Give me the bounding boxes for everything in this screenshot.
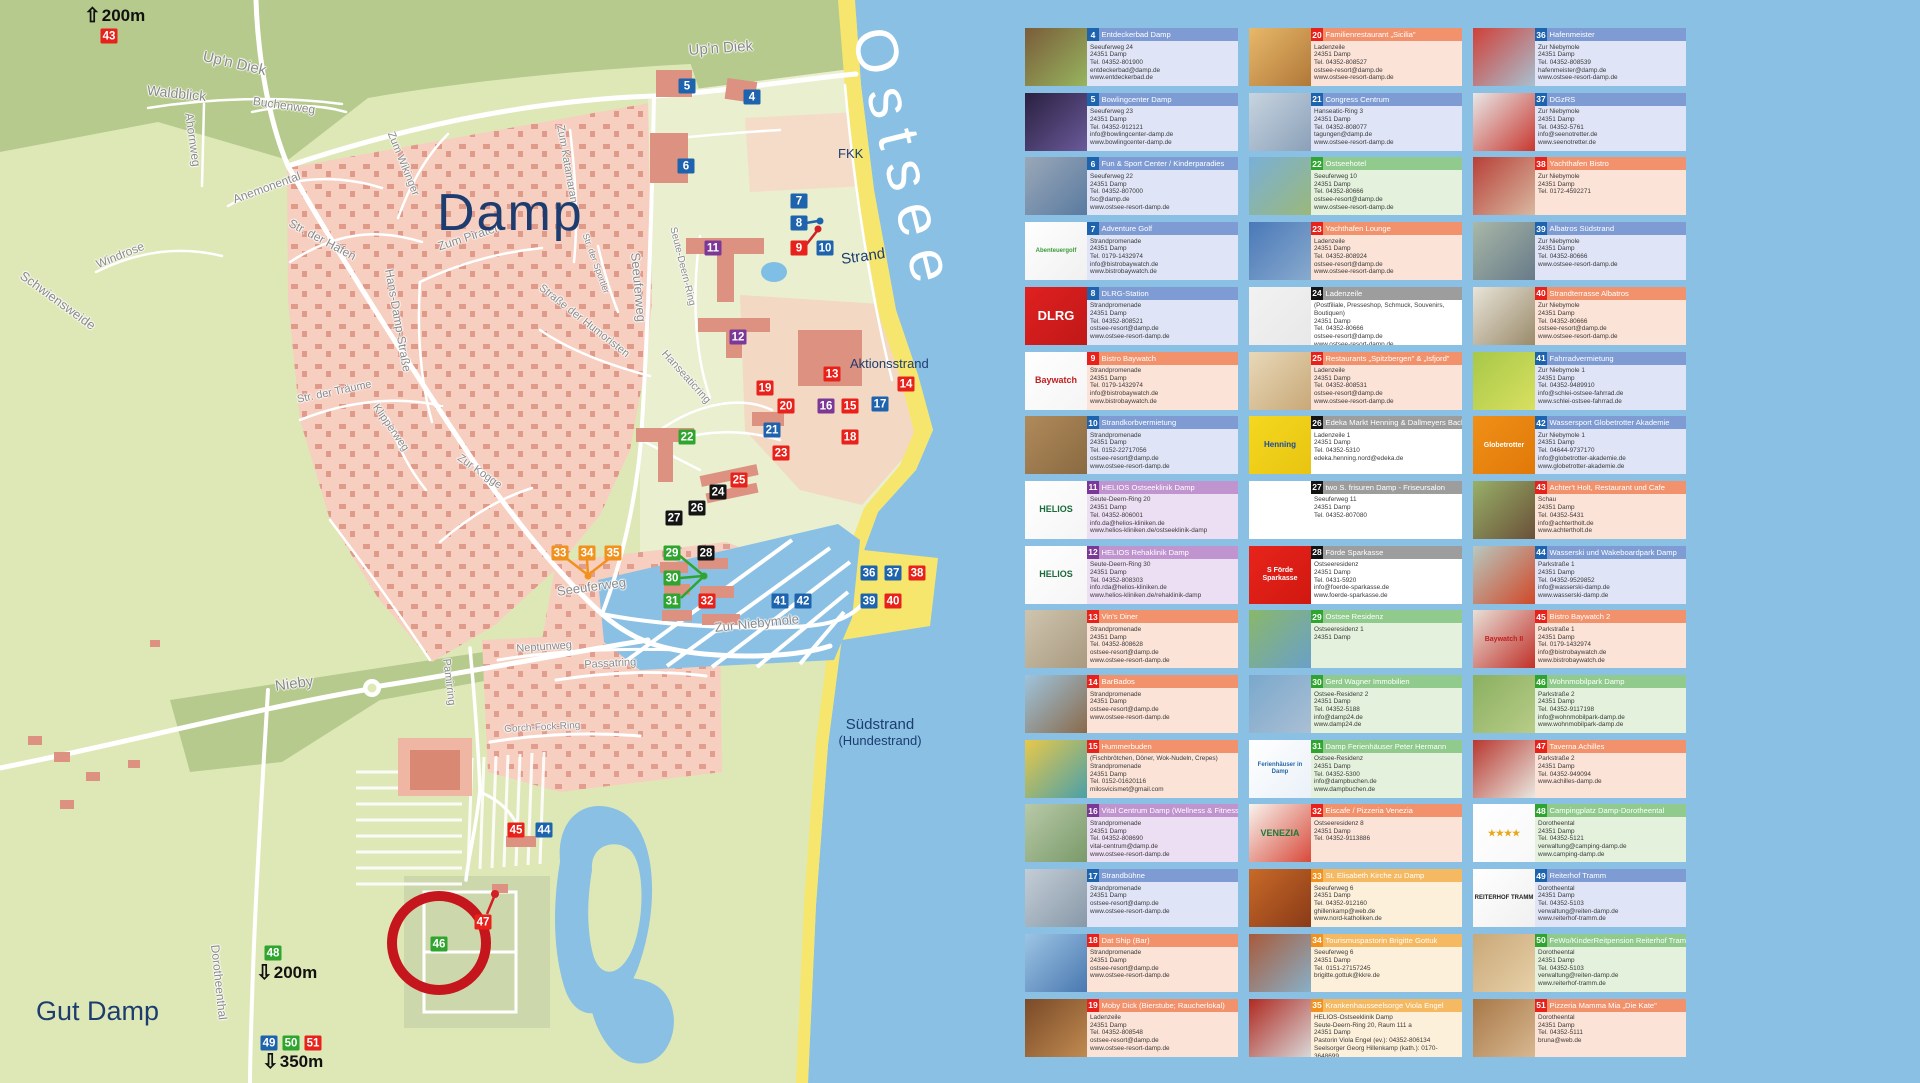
entry-name: Reiterhof Tramm [1550, 871, 1607, 880]
scale-indicator-camping: ⇩ 200m [256, 963, 317, 983]
entry-details: Hanseatic-Ring 324351 DampTel. 04352-808… [1311, 106, 1462, 151]
entry-number: 34 [1311, 934, 1323, 947]
entry-name: Albatros Südstrand [1550, 224, 1615, 233]
directory-entry-15: 15Hummerbuden(Fischbrötchen, Döner, Wok-… [1025, 740, 1238, 798]
directory-entry-33: 33St. Elisabeth Kirche zu DampSeeuferweg… [1249, 869, 1462, 927]
entry-details: Seeuferweg 2424351 DampTel. 04352-801900… [1087, 41, 1238, 86]
entry-number: 19 [1087, 999, 1099, 1012]
entry-photo [1473, 675, 1535, 733]
entry-header: 20Familienrestaurant „Sicilia" [1311, 28, 1462, 41]
entry-header: 26Edeka Markt Henning & Dallmeyers Backh… [1311, 416, 1462, 429]
entry-header: 51Pizzeria Mamma Mia „Die Kate" [1535, 999, 1686, 1012]
entry-header: 13Vin's Diner [1087, 610, 1238, 623]
map-marker-41: 41 [772, 594, 789, 609]
entry-details: Parkstraße 224351 DampTel. 04352-949094w… [1535, 753, 1686, 798]
entry-header: 11HELIOS Ostseeklinik Damp [1087, 481, 1238, 494]
entry-details: Parkstraße 224351 DampTel. 04352-9117198… [1535, 688, 1686, 733]
map-marker-48: 48 [265, 946, 282, 961]
directory-entry-49: REITERHOF TRAMM49Reiterhof TrammDorothee… [1473, 869, 1686, 927]
entry-header: 23Yachthafen Lounge [1311, 222, 1462, 235]
map-marker-23: 23 [773, 446, 790, 461]
map-marker-11: 11 [705, 241, 722, 256]
entry-name: Krankenhausseelsorge Viola Engel [1326, 1001, 1444, 1010]
map-marker-21: 21 [764, 423, 781, 438]
entry-number: 46 [1535, 675, 1547, 688]
map-marker-39: 39 [861, 594, 878, 609]
entry-number: 15 [1087, 740, 1099, 753]
entry-details: Ostseeresidenz24351 DampTel. 0431-5920in… [1311, 559, 1462, 604]
entry-name: Ladenzeile [1326, 289, 1363, 298]
entry-details: Seeuferweg 2224351 DampTel. 04352-807000… [1087, 170, 1238, 215]
directory-entry-18: 18Dat Ship (Bar)Strandpromenade24351 Dam… [1025, 934, 1238, 992]
entry-photo [1473, 352, 1535, 410]
directory-entry-22: 22OstseehotelSeeuferweg 1024351 DampTel.… [1249, 157, 1462, 215]
entry-photo: REITERHOF TRAMM [1473, 869, 1535, 927]
map-marker-46: 46 [431, 937, 448, 952]
directory-entry-43: 43Achter't Holt, Restaurant und CafeScha… [1473, 481, 1686, 539]
entry-details: Zur Niebymole24351 DampTel. 04352-80666o… [1535, 300, 1686, 345]
entry-details: Ostseeresidenz 124351 Damp [1311, 623, 1462, 668]
entry-header: 32Eiscafe / Pizzeria Venezia [1311, 804, 1462, 817]
entry-header: 12HELIOS Rehaklinik Damp [1087, 546, 1238, 559]
entry-number: 48 [1535, 804, 1547, 817]
entry-header: 38Yachthafen Bistro [1535, 157, 1686, 170]
map-marker-5: 5 [679, 79, 696, 94]
entry-details: Strandpromenade24351 Dampostsee-resort@d… [1087, 882, 1238, 927]
entry-photo [1473, 157, 1535, 215]
entry-name: Restaurants „Spitzbergen" & „Isfjord" [1326, 354, 1450, 363]
entry-header: 35Krankenhausseelsorge Viola Engel [1311, 999, 1462, 1012]
map-marker-17: 17 [872, 397, 889, 412]
entry-details: Zur Niebymole24351 DampTel. 0172-4592271 [1535, 170, 1686, 215]
directory-entry-42: Globetrotter42Wassersport Globetrotter A… [1473, 416, 1686, 474]
entry-header: 37DGzRS [1535, 93, 1686, 106]
entry-photo [1249, 675, 1311, 733]
entry-photo [1249, 999, 1311, 1057]
entry-number: 49 [1535, 869, 1547, 882]
entry-details: Seute-Deern-Ring 2024351 DampTel. 04352-… [1087, 494, 1238, 539]
entry-photo [1249, 352, 1311, 410]
entry-name: Tourismuspastorin Brigitte Gottuk [1326, 936, 1438, 945]
entry-number: 40 [1535, 287, 1547, 300]
entry-photo [1249, 93, 1311, 151]
directory-entry-44: 44Wasserski und Wakeboardpark DampParkst… [1473, 546, 1686, 604]
entry-number: 22 [1311, 157, 1323, 170]
entry-number: 42 [1535, 416, 1547, 429]
entry-details: Seeuferweg 2324351 DampTel. 04352-912121… [1087, 106, 1238, 151]
directory-entry-48: ★★★★48Campingplatz Damp-DorotheentalDoro… [1473, 804, 1686, 862]
directory-entry-39: 39Albatros SüdstrandZur Niebymole24351 D… [1473, 222, 1686, 280]
map-marker-36: 36 [861, 566, 878, 581]
entry-details: Parkstraße 124351 DampTel. 04352-9529852… [1535, 559, 1686, 604]
entry-number: 25 [1311, 352, 1323, 365]
map-marker-14: 14 [898, 377, 915, 392]
entry-details: Ostsee-Residenz 224351 DampTel. 04352-51… [1311, 688, 1462, 733]
entry-header: 4Entdeckerbad Damp [1087, 28, 1238, 41]
entry-header: 28Förde Sparkasse [1311, 546, 1462, 559]
entry-name: Wasserski und Wakeboardpark Damp [1550, 548, 1677, 557]
map-marker-33: 33 [552, 546, 569, 561]
entry-name: Moby Dick (Bierstube; Raucherlokal) [1102, 1001, 1225, 1010]
entry-details: Strandpromenade24351 DampTel. 0152-22717… [1087, 429, 1238, 474]
entry-header: 7Adventure Golf [1087, 222, 1238, 235]
entry-details: (Fischbrötchen, Döner, Wok-Nudeln, Crepe… [1087, 753, 1238, 798]
arrow-down-icon: ⇩ [262, 1053, 279, 1071]
entry-number: 31 [1311, 740, 1323, 753]
entry-number: 36 [1535, 28, 1547, 41]
entry-photo [1025, 610, 1087, 668]
entry-number: 10 [1087, 416, 1099, 429]
entry-header: 18Dat Ship (Bar) [1087, 934, 1238, 947]
directory-entry-9: Baywatch9Bistro BaywatchStrandpromenade2… [1025, 352, 1238, 410]
entry-number: 41 [1535, 352, 1547, 365]
entry-photo [1473, 222, 1535, 280]
directory-entry-14: 14BarBadosStrandpromenade24351 Dampostse… [1025, 675, 1238, 733]
map-marker-27: 27 [666, 511, 683, 526]
entry-photo [1025, 157, 1087, 215]
entry-header: 19Moby Dick (Bierstube; Raucherlokal) [1087, 999, 1238, 1012]
entry-name: HELIOS Ostseeklinik Damp [1102, 483, 1195, 492]
entry-header: 49Reiterhof Tramm [1535, 869, 1686, 882]
entry-name: DLRG-Station [1102, 289, 1149, 298]
entry-header: 45Bistro Baywatch 2 [1535, 610, 1686, 623]
entry-photo [1473, 481, 1535, 539]
entry-number: 26 [1311, 416, 1323, 429]
map-marker-35: 35 [605, 546, 622, 561]
map-marker-47: 47 [475, 915, 492, 930]
directory-entry-36: 36HafenmeisterZur Niebymole24351 DampTel… [1473, 28, 1686, 86]
entry-details: Ladenzeile 124351 DampTel. 04352-5310ede… [1311, 429, 1462, 474]
entry-details: HELIOS-Ostseeklinik DampSeute-Deern-Ring… [1311, 1012, 1462, 1057]
entry-details: Strandpromenade24351 DampTel. 04352-8086… [1087, 623, 1238, 668]
map-marker-28: 28 [698, 546, 715, 561]
entry-details: Ladenzeile24351 DampTel. 04352-808531ost… [1311, 365, 1462, 410]
map-marker-32: 32 [699, 594, 716, 609]
map-marker-45: 45 [508, 823, 525, 838]
map-marker-15: 15 [842, 399, 859, 414]
beach-label-aktionsstrand: Aktionsstrand [850, 356, 929, 371]
map-marker-9: 9 [791, 241, 808, 256]
entry-number: 33 [1311, 869, 1323, 882]
entry-name: Achter't Holt, Restaurant und Cafe [1550, 483, 1665, 492]
entry-photo [1473, 93, 1535, 151]
entry-name: HELIOS Rehaklinik Damp [1102, 548, 1189, 557]
entry-header: 39Albatros Südstrand [1535, 222, 1686, 235]
entry-photo: Globetrotter [1473, 416, 1535, 474]
entry-number: 29 [1311, 610, 1323, 623]
entry-number: 27 [1311, 481, 1323, 494]
entry-name: Gerd Wagner Immobilien [1326, 677, 1410, 686]
entry-details: Strandpromenade24351 Dampostsee-resort@d… [1087, 947, 1238, 992]
entry-photo: HELIOS [1025, 546, 1087, 604]
directory-entry-40: 40Strandterrasse AlbatrosZur Niebymole24… [1473, 287, 1686, 345]
directory-entry-46: 46Wohnmobilpark DampParkstraße 224351 Da… [1473, 675, 1686, 733]
map-marker-43: 43 [101, 29, 118, 44]
entry-photo [1249, 157, 1311, 215]
entry-photo [1249, 287, 1311, 345]
map-marker-12: 12 [730, 330, 747, 345]
directory-entry-32: VENEZIA32Eiscafe / Pizzeria VeneziaOstse… [1249, 804, 1462, 862]
map-marker-16: 16 [818, 399, 835, 414]
directory-entry-26: Henning26Edeka Markt Henning & Dallmeyer… [1249, 416, 1462, 474]
directory-entry-23: 23Yachthafen LoungeLadenzeile24351 DampT… [1249, 222, 1462, 280]
entry-header: 48Campingplatz Damp-Dorotheental [1535, 804, 1686, 817]
entry-photo [1249, 869, 1311, 927]
map-marker-49: 49 [261, 1036, 278, 1051]
entry-number: 14 [1087, 675, 1099, 688]
entry-header: 21Congress Centrum [1311, 93, 1462, 106]
entry-details: Schau24351 DampTel. 04352-5431info@achte… [1535, 494, 1686, 539]
entry-name: Bowlingcenter Damp [1102, 95, 1172, 104]
entry-details: Strandpromenade24351 DampTel. 0179-14329… [1087, 235, 1238, 280]
entry-photo [1473, 546, 1535, 604]
entry-header: 50FeWo/KinderReitpension Reiterhof Tramm [1535, 934, 1686, 947]
map-marker-25: 25 [731, 473, 748, 488]
place-label-damp: Damp [437, 183, 584, 243]
entry-photo [1025, 93, 1087, 151]
directory-entry-4: 4Entdeckerbad DampSeeuferweg 2424351 Dam… [1025, 28, 1238, 86]
entry-number: 18 [1087, 934, 1099, 947]
map-marker-37: 37 [885, 566, 902, 581]
map-marker-22: 22 [679, 430, 696, 445]
entry-name: Taverna Achilles [1550, 742, 1605, 751]
directory-entry-25: 25Restaurants „Spitzbergen" & „Isfjord"L… [1249, 352, 1462, 410]
entry-name: Bistro Baywatch 2 [1550, 612, 1611, 621]
entry-photo: Abenteuergolf [1025, 222, 1087, 280]
directory-entry-7: Abenteuergolf7Adventure GolfStrandpromen… [1025, 222, 1238, 280]
entry-header: 44Wasserski und Wakeboardpark Damp [1535, 546, 1686, 559]
entry-name: BarBados [1102, 677, 1135, 686]
entry-number: 16 [1087, 804, 1099, 817]
map-marker-8: 8 [791, 216, 808, 231]
entry-photo [1249, 222, 1311, 280]
entry-details: Dorotheental24351 DampTel. 04352-5103ver… [1535, 882, 1686, 927]
entry-photo [1473, 934, 1535, 992]
entry-details: Dorotheental24351 DampTel. 04352-5111bru… [1535, 1012, 1686, 1057]
entry-name: Wassersport Globetrotter Akademie [1550, 418, 1670, 427]
entry-header: 10Strandkorbvermietung [1087, 416, 1238, 429]
scale-indicator-reiterhof: ⇩ 350m [262, 1052, 323, 1072]
entry-details: (Postfiliale, Presseshop, Schmuck, Souve… [1311, 300, 1462, 345]
entry-photo [1025, 804, 1087, 862]
entry-name: Bistro Baywatch [1102, 354, 1156, 363]
entry-name: Vin's Diner [1102, 612, 1138, 621]
entry-photo: Baywatch II [1473, 610, 1535, 668]
directory-entry-41: 41FahrradvermietungZur Niebymole 124351 … [1473, 352, 1686, 410]
entry-number: 8 [1087, 287, 1099, 300]
entry-number: 24 [1311, 287, 1323, 300]
entry-name: Eiscafe / Pizzeria Venezia [1326, 806, 1413, 815]
entry-number: 32 [1311, 804, 1323, 817]
entry-photo [1473, 287, 1535, 345]
directory-entry-37: 37DGzRSZur Niebymole24351 DampTel. 04352… [1473, 93, 1686, 151]
map-marker-29: 29 [664, 546, 681, 561]
entry-number: 39 [1535, 222, 1547, 235]
entry-name: Congress Centrum [1326, 95, 1390, 104]
directory-entry-24: 24Ladenzeile(Postfiliale, Presseshop, Sc… [1249, 287, 1462, 345]
entry-name: Yachthafen Bistro [1550, 159, 1609, 168]
map-marker-31: 31 [664, 594, 681, 609]
entry-number: 13 [1087, 610, 1099, 623]
directory-entry-34: 34Tourismuspastorin Brigitte GottukSeeuf… [1249, 934, 1462, 992]
entry-number: 6 [1087, 157, 1099, 170]
entry-header: 25Restaurants „Spitzbergen" & „Isfjord" [1311, 352, 1462, 365]
map-marker-26: 26 [689, 501, 706, 516]
entry-details: Dorotheental24351 DampTel. 04352-5103ver… [1535, 947, 1686, 992]
entry-number: 43 [1535, 481, 1547, 494]
entry-header: 16Vital Centrum Damp (Wellness & Fitness… [1087, 804, 1238, 817]
directory-entry-31: Ferienhäuser in Damp31Damp Ferienhäuser … [1249, 740, 1462, 798]
directory-entry-11: HELIOS11HELIOS Ostseeklinik DampSeute-De… [1025, 481, 1238, 539]
entry-name: Strandkorbvermietung [1102, 418, 1177, 427]
map-marker-10: 10 [817, 241, 834, 256]
entry-photo [1025, 934, 1087, 992]
entry-photo [1473, 740, 1535, 798]
entry-details: Zur Niebymole 124351 DampTel. 04644-9737… [1535, 429, 1686, 474]
entry-number: 4 [1087, 28, 1099, 41]
entry-photo: VENEZIA [1249, 804, 1311, 862]
beach-label-suedstrand: Südstrand (Hundestrand) [810, 716, 950, 748]
map-marker-51: 51 [305, 1036, 322, 1051]
entry-photo: HELIOS [1025, 481, 1087, 539]
entry-name: Adventure Golf [1102, 224, 1153, 233]
entry-details: Strandpromenade24351 DampTel. 04352-8085… [1087, 300, 1238, 345]
entry-number: 28 [1311, 546, 1323, 559]
entry-photo [1025, 999, 1087, 1057]
entry-photo [1025, 416, 1087, 474]
entry-header: 8DLRG-Station [1087, 287, 1238, 300]
entry-name: Yachthafen Lounge [1326, 224, 1391, 233]
entry-details: Seeuferweg 1124351 DampTel. 04352-807080 [1311, 494, 1462, 539]
directory-entry-21: 21Congress CentrumHanseatic-Ring 324351 … [1249, 93, 1462, 151]
entry-number: 37 [1535, 93, 1547, 106]
directory-entry-45: Baywatch II45Bistro Baywatch 2Parkstraße… [1473, 610, 1686, 668]
entry-name: Damp Ferienhäuser Peter Hermann [1326, 742, 1447, 751]
entry-number: 35 [1311, 999, 1323, 1012]
map-marker-40: 40 [885, 594, 902, 609]
entry-details: Dorotheental24351 DampTel. 04352-5121ver… [1535, 817, 1686, 862]
entry-number: 51 [1535, 999, 1547, 1012]
entry-header: 17Strandbühne [1087, 869, 1238, 882]
entry-name: Ostsee Residenz [1326, 612, 1384, 621]
entry-name: Strandbühne [1102, 871, 1146, 880]
entry-details: Strandpromenade24351 DampTel. 04352-8086… [1087, 817, 1238, 862]
entry-name: FeWo/KinderReitpension Reiterhof Tramm [1550, 936, 1687, 945]
directory-entry-8: DLRG8DLRG-StationStrandpromenade24351 Da… [1025, 287, 1238, 345]
entry-photo [1249, 934, 1311, 992]
directory-entry-30: 30Gerd Wagner ImmobilienOstsee-Residenz … [1249, 675, 1462, 733]
entry-name: Pizzeria Mamma Mia „Die Kate" [1550, 1001, 1657, 1010]
entry-header: 43Achter't Holt, Restaurant und Cafe [1535, 481, 1686, 494]
entry-name: Fahrradvermietung [1550, 354, 1614, 363]
entry-number: 38 [1535, 157, 1547, 170]
entry-name: Strandterrasse Albatros [1550, 289, 1629, 298]
entry-photo [1025, 28, 1087, 86]
arrow-up-icon: ⇧ [84, 7, 101, 25]
scale-indicator-north: ⇧ 200m [84, 6, 145, 26]
entry-number: 20 [1311, 28, 1323, 41]
directory-entry-35: 35Krankenhausseelsorge Viola EngelHELIOS… [1249, 999, 1462, 1057]
entry-header: 15Hummerbuden [1087, 740, 1238, 753]
directory-entry-38: 38Yachthafen BistroZur Niebymole24351 Da… [1473, 157, 1686, 215]
entry-name: Förde Sparkasse [1326, 548, 1384, 557]
map-marker-6: 6 [678, 159, 695, 174]
entry-header: 6Fun & Sport Center / Kinderparadies [1087, 157, 1238, 170]
entry-details: Zur Niebymole 124351 DampTel. 04352-9489… [1535, 365, 1686, 410]
entry-details: Ostseeresidenz 824351 DampTel. 04352-911… [1311, 817, 1462, 862]
entry-header: 31Damp Ferienhäuser Peter Hermann [1311, 740, 1462, 753]
entry-photo: S Förde Sparkasse [1249, 546, 1311, 604]
map-marker-4: 4 [744, 90, 761, 105]
map-marker-34: 34 [579, 546, 596, 561]
map-marker-30: 30 [664, 571, 681, 586]
entry-photo [1249, 610, 1311, 668]
entry-header: 34Tourismuspastorin Brigitte Gottuk [1311, 934, 1462, 947]
entry-photo: Henning [1249, 416, 1311, 474]
entry-number: 47 [1535, 740, 1547, 753]
entry-details: Ostsee-Residenz24351 DampTel. 04352-5300… [1311, 753, 1462, 798]
directory-entry-10: 10StrandkorbvermietungStrandpromenade243… [1025, 416, 1238, 474]
map-marker-42: 42 [795, 594, 812, 609]
entry-details: Strandpromenade24351 Dampostsee-resort@d… [1087, 688, 1238, 733]
entry-photo [1249, 28, 1311, 86]
entry-photo [1473, 999, 1535, 1057]
entry-name: Campingplatz Damp-Dorotheental [1550, 806, 1665, 815]
directory-entry-19: 19Moby Dick (Bierstube; Raucherlokal)Lad… [1025, 999, 1238, 1057]
entry-header: 40Strandterrasse Albatros [1535, 287, 1686, 300]
entry-photo [1025, 740, 1087, 798]
entry-name: Ostseehotel [1326, 159, 1367, 168]
map-marker-20: 20 [778, 399, 795, 414]
directory-entry-47: 47Taverna AchillesParkstraße 224351 Damp… [1473, 740, 1686, 798]
directory-entry-5: 5Bowlingcenter DampSeeuferweg 2324351 Da… [1025, 93, 1238, 151]
entry-name: DGzRS [1550, 95, 1576, 104]
map-marker-38: 38 [909, 566, 926, 581]
entry-details: Strandpromenade24351 DampTel. 0179-14329… [1087, 365, 1238, 410]
entry-number: 7 [1087, 222, 1099, 235]
entry-name: Vital Centrum Damp (Wellness & Fitness) [1102, 806, 1239, 815]
entry-details: Seeuferweg 624351 DampTel. 04352-912160g… [1311, 882, 1462, 927]
entry-number: 21 [1311, 93, 1323, 106]
entry-header: 42Wassersport Globetrotter Akademie [1535, 416, 1686, 429]
entry-name: Entdeckerbad Damp [1102, 30, 1171, 39]
map-marker-50: 50 [283, 1036, 300, 1051]
directory-entry-51: 51Pizzeria Mamma Mia „Die Kate"Dorotheen… [1473, 999, 1686, 1057]
entry-name: two S. frisuren Damp - Friseursalon [1326, 483, 1445, 492]
map-marker-24: 24 [710, 485, 727, 500]
entry-details: Zur Niebymole24351 DampTel. 04352-80666w… [1535, 235, 1686, 280]
entry-header: 29Ostsee Residenz [1311, 610, 1462, 623]
entry-details: Seeuferweg 1024351 DampTel. 04352-80666o… [1311, 170, 1462, 215]
entry-number: 30 [1311, 675, 1323, 688]
entry-header: 22Ostseehotel [1311, 157, 1462, 170]
directory-entry-16: 16Vital Centrum Damp (Wellness & Fitness… [1025, 804, 1238, 862]
directory-entry-13: 13Vin's DinerStrandpromenade24351 DampTe… [1025, 610, 1238, 668]
directory-entry-6: 6Fun & Sport Center / KinderparadiesSeeu… [1025, 157, 1238, 215]
entry-number: 45 [1535, 610, 1547, 623]
entry-details: Ladenzeile24351 DampTel. 04352-808527ost… [1311, 41, 1462, 86]
entry-number: 5 [1087, 93, 1099, 106]
entry-header: 9Bistro Baywatch [1087, 352, 1238, 365]
entry-photo: DLRG [1025, 287, 1087, 345]
entry-photo [1473, 28, 1535, 86]
entry-number: 11 [1087, 481, 1099, 494]
entry-details: Seute-Deern-Ring 3024351 DampTel. 04352-… [1087, 559, 1238, 604]
directory-entry-27: 27two S. frisuren Damp - FriseursalonSee… [1249, 481, 1462, 539]
entry-photo [1249, 481, 1311, 539]
entry-header: 47Taverna Achilles [1535, 740, 1686, 753]
entry-header: 27two S. frisuren Damp - Friseursalon [1311, 481, 1462, 494]
